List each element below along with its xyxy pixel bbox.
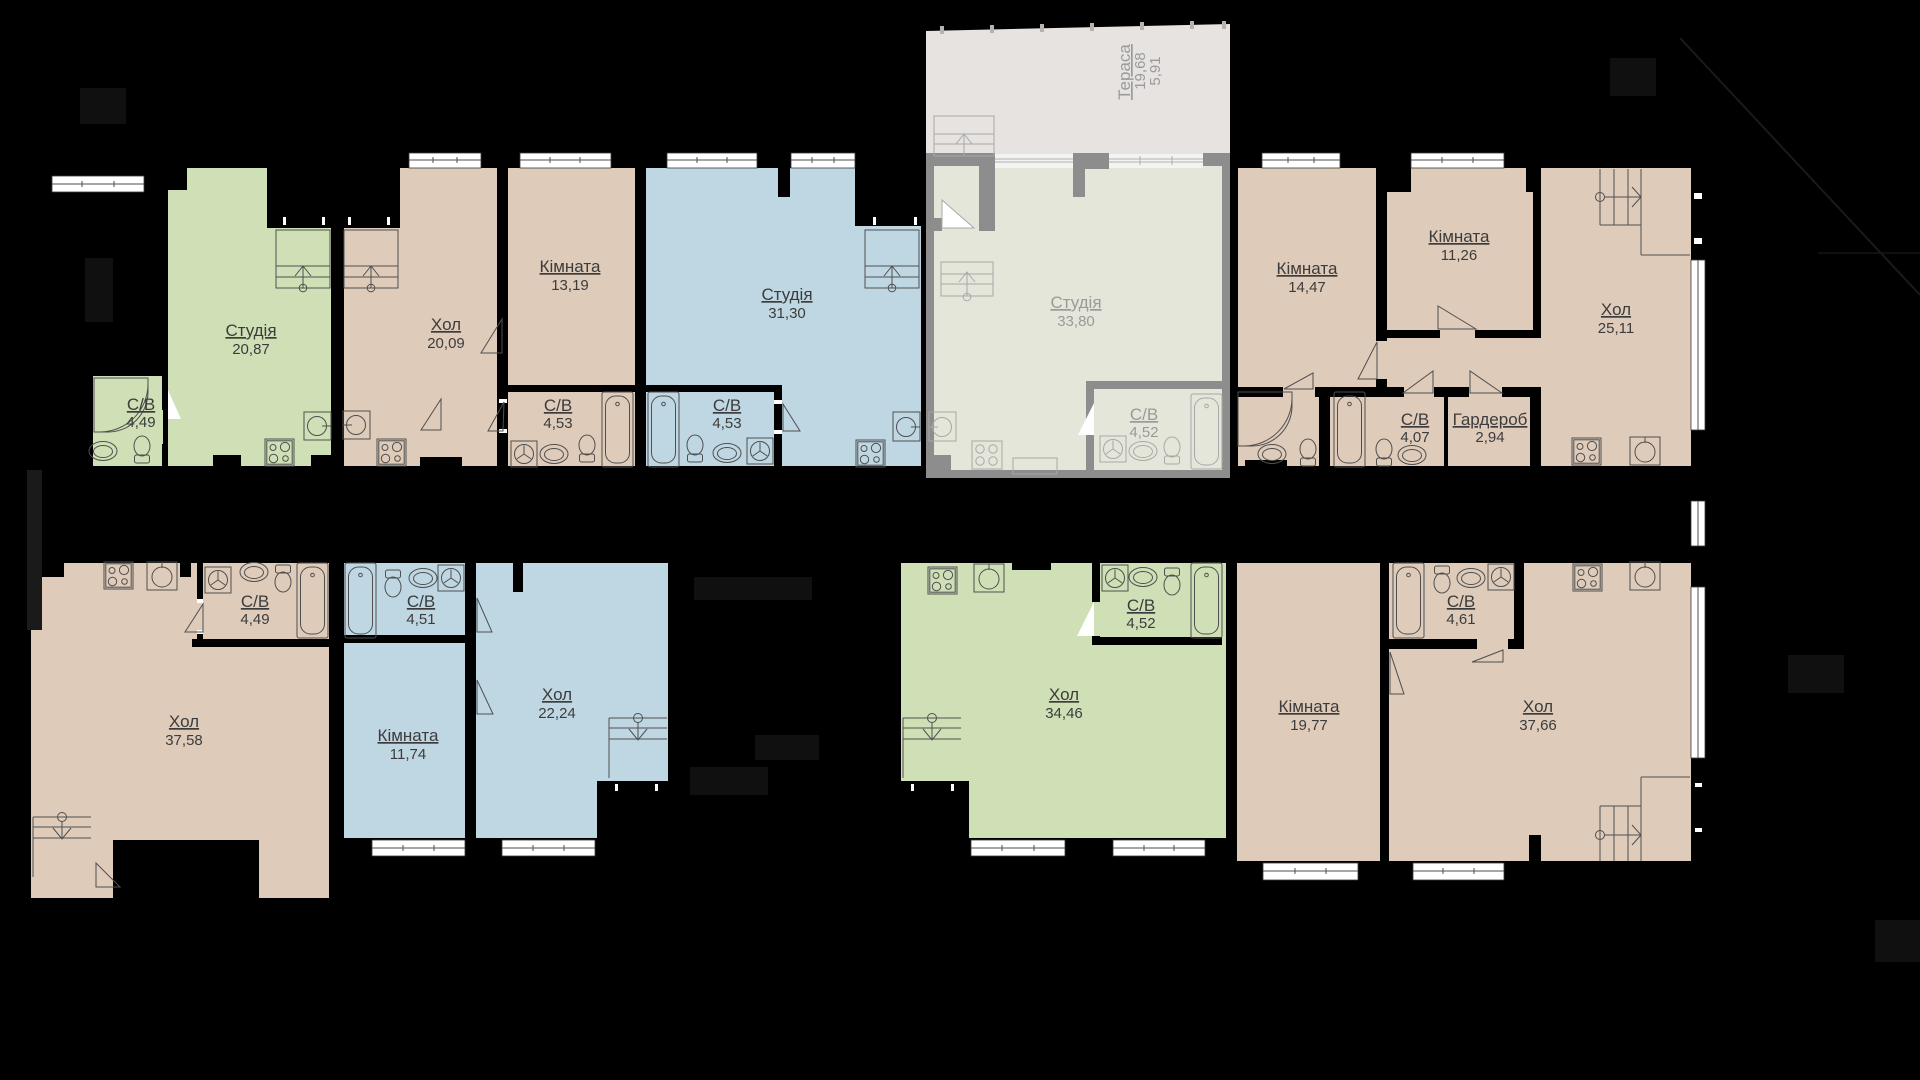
svg-text:Гардероб: Гардероб xyxy=(1453,410,1528,429)
svg-text:С/В: С/В xyxy=(544,396,572,415)
svg-text:Хол: Хол xyxy=(1601,300,1631,319)
svg-text:11,74: 11,74 xyxy=(390,746,426,763)
svg-text:С/В: С/В xyxy=(241,592,269,611)
svg-text:4,53: 4,53 xyxy=(712,415,741,432)
svg-text:С/В: С/В xyxy=(127,395,155,414)
svg-text:4,07: 4,07 xyxy=(1400,429,1429,446)
svg-text:Кімната: Кімната xyxy=(1279,697,1340,716)
svg-text:С/В: С/В xyxy=(1130,405,1158,424)
svg-text:Хол: Хол xyxy=(431,315,461,334)
svg-text:Кімната: Кімната xyxy=(1277,259,1338,278)
svg-text:20,09: 20,09 xyxy=(427,335,465,352)
svg-text:34,46: 34,46 xyxy=(1045,705,1083,722)
svg-text:19,77: 19,77 xyxy=(1290,717,1328,734)
svg-text:33,80: 33,80 xyxy=(1057,313,1095,330)
svg-text:4,49: 4,49 xyxy=(240,611,269,628)
svg-text:13,19: 13,19 xyxy=(551,277,589,294)
svg-text:Студія: Студія xyxy=(1050,293,1101,312)
svg-text:11,26: 11,26 xyxy=(1441,247,1477,264)
svg-text:37,66: 37,66 xyxy=(1519,717,1557,734)
svg-text:5,91: 5,91 xyxy=(1147,56,1164,85)
svg-text:22,24: 22,24 xyxy=(538,705,576,722)
svg-text:С/В: С/В xyxy=(407,592,435,611)
svg-text:Студія: Студія xyxy=(761,285,812,304)
svg-text:Хол: Хол xyxy=(1523,697,1553,716)
svg-text:Хол: Хол xyxy=(169,712,199,731)
svg-text:31,30: 31,30 xyxy=(768,305,806,322)
svg-text:С/В: С/В xyxy=(1447,592,1475,611)
svg-text:Кімната: Кімната xyxy=(540,257,601,276)
svg-text:Кімната: Кімната xyxy=(1429,227,1490,246)
svg-text:14,47: 14,47 xyxy=(1288,279,1326,296)
svg-text:Кімната: Кімната xyxy=(378,726,439,745)
svg-text:Студія: Студія xyxy=(225,321,276,340)
svg-text:Хол: Хол xyxy=(1049,685,1079,704)
svg-text:4,52: 4,52 xyxy=(1126,615,1155,632)
svg-text:С/В: С/В xyxy=(1127,596,1155,615)
svg-text:4,51: 4,51 xyxy=(406,611,435,628)
svg-text:4,53: 4,53 xyxy=(543,415,572,432)
svg-text:Хол: Хол xyxy=(542,685,572,704)
svg-text:4,61: 4,61 xyxy=(1446,611,1475,628)
svg-text:4,52: 4,52 xyxy=(1129,424,1158,441)
svg-text:20,87: 20,87 xyxy=(232,341,270,358)
svg-text:2,94: 2,94 xyxy=(1475,429,1504,446)
svg-text:С/В: С/В xyxy=(1401,410,1429,429)
svg-text:25,11: 25,11 xyxy=(1598,320,1634,337)
svg-text:37,58: 37,58 xyxy=(165,732,203,749)
svg-text:С/В: С/В xyxy=(713,396,741,415)
svg-text:4,49: 4,49 xyxy=(126,414,155,431)
